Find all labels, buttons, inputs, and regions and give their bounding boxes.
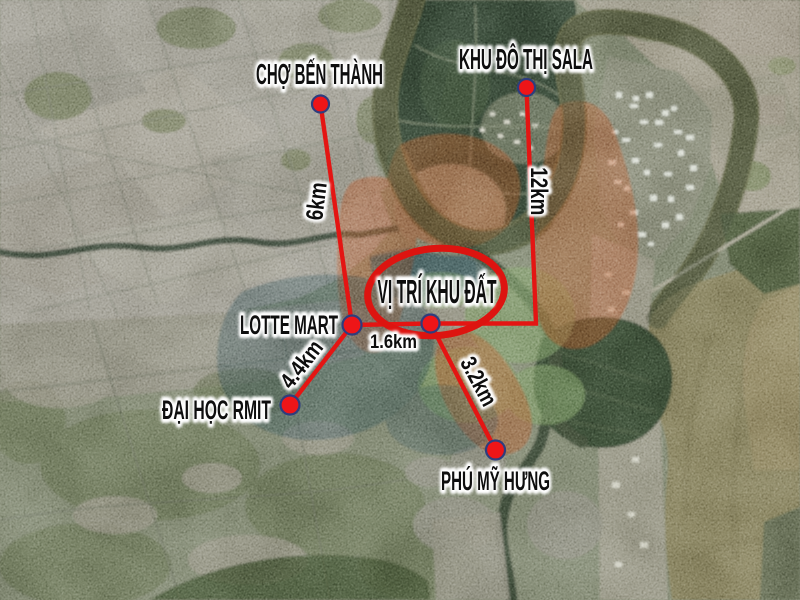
svg-text:VỊ TRÍ KHU ĐẤT: VỊ TRÍ KHU ĐẤT bbox=[378, 273, 497, 310]
svg-text:PHÚ MỸ HƯNG: PHÚ MỸ HƯNG bbox=[441, 465, 550, 496]
svg-text:KHU ĐÔ THỊ SALA: KHU ĐÔ THỊ SALA bbox=[459, 42, 593, 76]
svg-text:LOTTE MART: LOTTE MART bbox=[240, 310, 338, 340]
svg-text:1.6km: 1.6km bbox=[370, 332, 417, 353]
svg-text:CHỢ BẾN THÀNH: CHỢ BẾN THÀNH bbox=[256, 57, 383, 91]
svg-text:12km: 12km bbox=[525, 167, 552, 215]
svg-text:ĐẠI HỌC RMIT: ĐẠI HỌC RMIT bbox=[162, 395, 271, 425]
svg-text:6km: 6km bbox=[301, 181, 332, 222]
